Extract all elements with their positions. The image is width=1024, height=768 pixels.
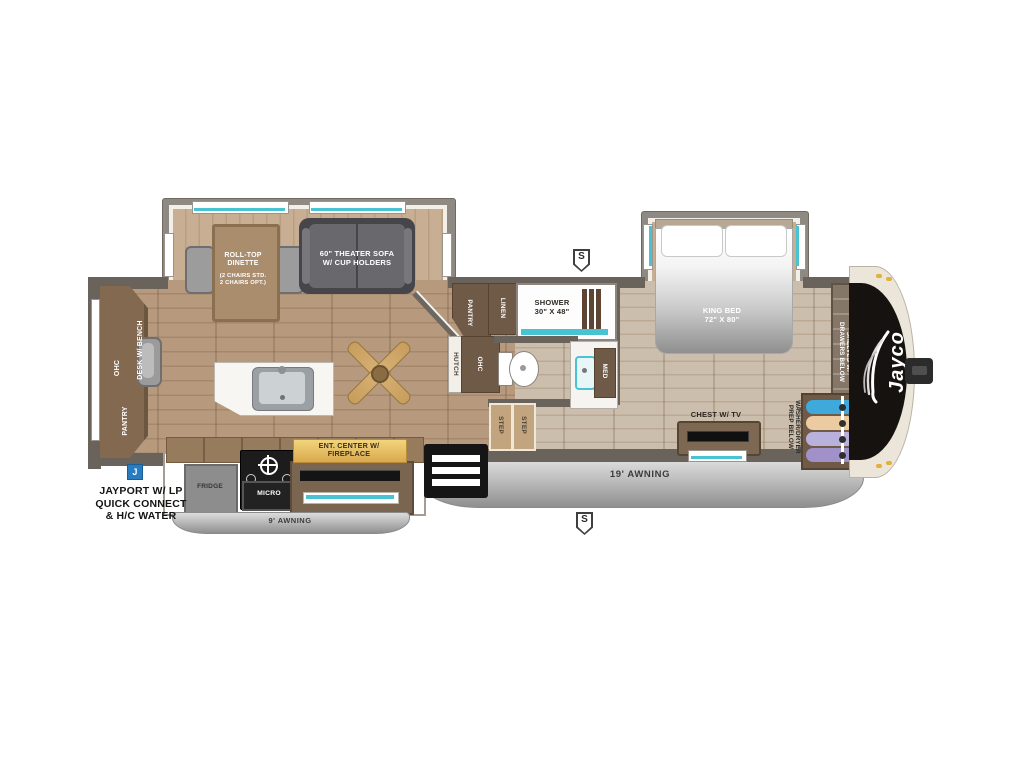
ohc-mid-label: OHC: [473, 349, 485, 379]
toilet-drain: [520, 365, 526, 371]
speaker-marker-letter: S: [573, 251, 590, 262]
window: [442, 233, 452, 277]
dinette-note: (2 CHAIRS STD. 2 CHAIRS OPT.): [206, 272, 280, 288]
window-accent: [691, 456, 742, 459]
window: [164, 233, 174, 277]
fireplace-accent: [306, 495, 394, 499]
desk-label: DESK W/ BENCH: [135, 315, 147, 385]
rv-floorplan: 19' AWNING OHC DESK W/ BENCH PANTRY ROLL…: [0, 0, 1024, 768]
linen-label: LINEN: [496, 290, 508, 326]
chest-label: CHEST W/ TV: [676, 410, 756, 420]
marker-light: [876, 274, 882, 278]
burner-icon-cross-h: [258, 464, 277, 466]
window-accent: [311, 208, 402, 211]
sink-drain: [280, 395, 285, 400]
entry-step-tread: [432, 467, 480, 474]
hanger-shirt-icon: [806, 416, 854, 430]
jayport-label: JAYPORT W/ LP QUICK CONNECT & H/C WATER: [46, 483, 236, 525]
tv-icon: [687, 431, 749, 442]
hanger-hook: [839, 420, 846, 427]
window: [91, 299, 100, 441]
sink-faucet: [278, 366, 286, 374]
jayport-marker: J: [127, 464, 143, 480]
pantry-rear-label: PANTRY: [120, 399, 132, 443]
speaker-marker-bottom: S: [576, 512, 593, 535]
entry-step-tread: [432, 479, 480, 486]
step-label-2: STEP: [517, 410, 529, 440]
ent-center-label: ENT. CENTER W/ FIREPLACE: [293, 440, 405, 460]
hanger-shirt-icon: [806, 432, 854, 446]
marker-light: [886, 277, 892, 281]
ent-center-tv: [300, 470, 400, 481]
burner-icon: [260, 457, 278, 475]
vanity-drain: [582, 368, 587, 373]
pillow: [725, 225, 787, 257]
hutch-label: HUTCH: [449, 344, 461, 384]
speaker-marker-top: S: [573, 249, 590, 272]
shower-label: SHOWER 30" X 48": [512, 296, 592, 320]
step-label-1: STEP: [494, 410, 506, 440]
pillow: [661, 225, 723, 257]
window-accent: [194, 208, 285, 211]
dinette-label: ROLL-TOP DINETTE: [206, 250, 280, 270]
shower-threshold: [521, 329, 608, 335]
hanger-hook: [839, 404, 846, 411]
vanity-sink-icon: [575, 356, 596, 390]
shower-door: [596, 289, 601, 329]
hitch-pin-slot: [912, 366, 927, 375]
ceiling-fan-hub: [371, 365, 389, 383]
entry-step-tread: [432, 455, 480, 462]
sofa-label: 60" THEATER SOFA W/ CUP HOLDERS: [305, 248, 409, 270]
pantry-mid-label: PANTRY: [463, 291, 475, 335]
ohc-rear-label: OHC: [112, 353, 124, 383]
speaker-marker-letter: S: [576, 514, 593, 525]
window-accent: [649, 226, 652, 266]
med-label: MED: [598, 358, 610, 384]
hanger-hook: [839, 436, 846, 443]
marker-light: [876, 464, 882, 468]
micro-label: MICRO: [242, 489, 296, 499]
hanger-hook: [839, 452, 846, 459]
king-bed-label: KING BED 72" X 80": [682, 306, 762, 326]
hanger-shirt-icon: [806, 448, 854, 462]
toilet-room-top-wall: [494, 336, 578, 343]
hanger-shirt-icon: [806, 400, 854, 414]
marker-light: [886, 461, 892, 465]
window-accent: [796, 226, 799, 266]
